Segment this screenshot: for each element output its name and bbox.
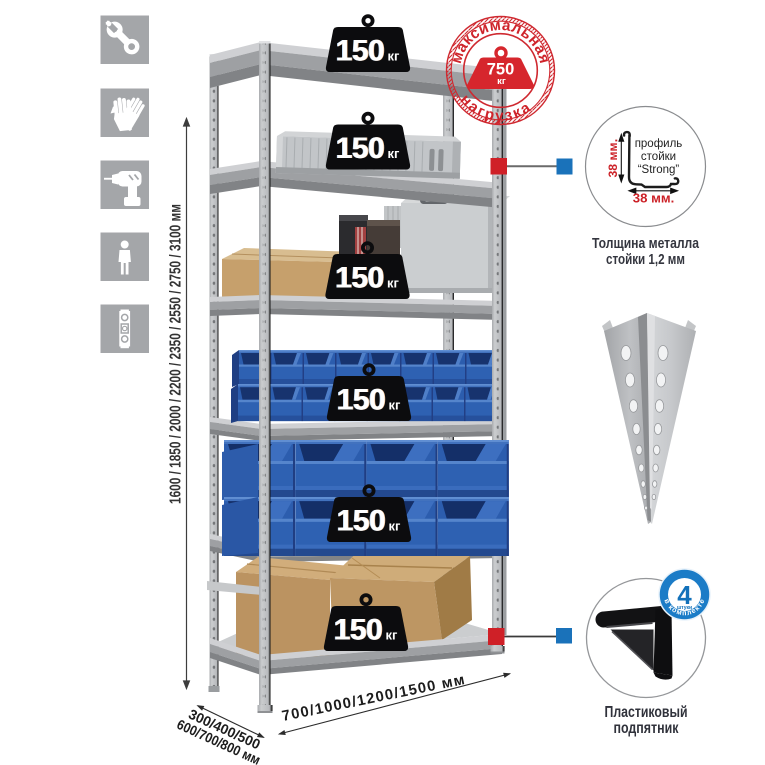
svg-text:Толщина металла: Толщина металла [592,235,699,252]
svg-text:Пластиковый: Пластиковый [605,704,688,721]
svg-text:стойки: стойки [641,151,676,163]
svg-text:1600 / 1850 / 2000 / 2200 / 23: 1600 / 1850 / 2000 / 2200 / 2350 / 2550 … [168,204,185,504]
svg-text:стойки 1,2 мм: стойки 1,2 мм [606,251,685,268]
svg-text:“Strong”: “Strong” [638,164,680,176]
svg-text:кг: кг [497,76,506,87]
svg-text:подпятник: подпятник [614,720,680,737]
svg-text:38 мм․: 38 мм․ [606,138,620,177]
svg-text:профиль: профиль [635,138,683,150]
svg-text:38 мм.: 38 мм. [633,191,675,206]
